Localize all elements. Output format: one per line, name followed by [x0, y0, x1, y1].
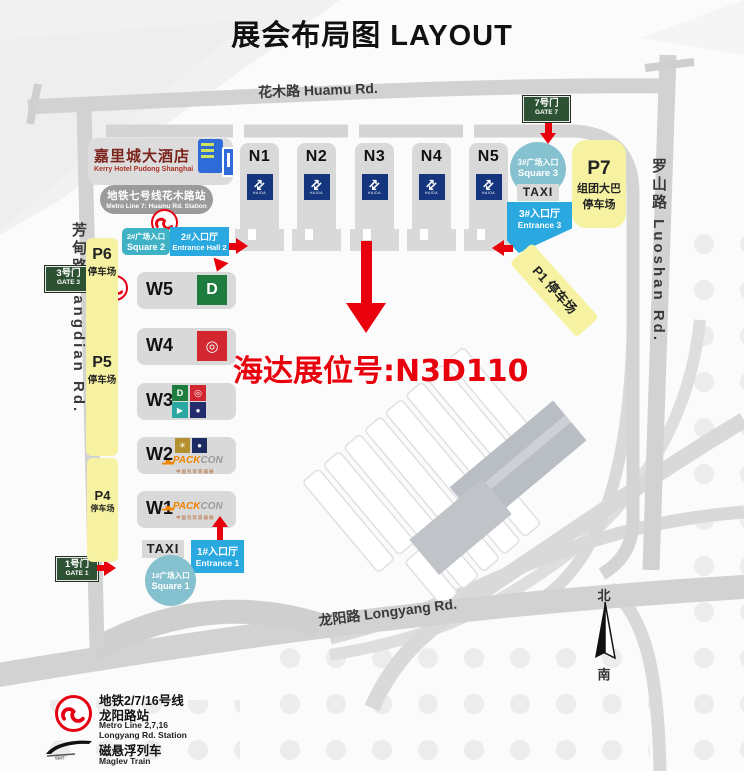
hall-n4-base: [407, 229, 456, 251]
entrance-1-label: 1#入口厅 Entrance 1: [191, 540, 244, 573]
square-1-en: Square 1: [145, 581, 196, 591]
maglev-train-icon: SMT: [45, 738, 95, 760]
gate-7-cn: 7号门: [524, 97, 569, 109]
hall-n2-label: N2: [297, 143, 336, 166]
hall-n1-label: N1: [240, 143, 279, 166]
brand-logo-red-emblem: ◎: [197, 331, 227, 361]
square-1-circle: 1#广场入口 Square 1: [145, 555, 196, 606]
brand-logo-navy: ●: [190, 402, 206, 418]
metro-line7-en: Metro Line 7: Huamu Rd. Station: [100, 203, 213, 210]
expo-arrows-logo: ⇄HAIDA: [419, 174, 445, 200]
parking-p6: P6 停车场: [86, 238, 118, 278]
hall-n5-label: N5: [469, 143, 508, 166]
square-3-cn: 3#广场入口: [510, 157, 566, 168]
hotel-building-icon: [198, 139, 234, 175]
packcon-logo: ▂▅▃PACKCON 中国包装容器展: [162, 454, 223, 476]
metro-line7-cn: 地铁七号线花木路站: [100, 185, 213, 203]
shanghai-metro-icon: [55, 695, 92, 732]
hall-n3-label: N3: [355, 143, 394, 166]
parking-p4-label: P4: [87, 458, 118, 503]
huamu-road-label: 花木路 Huamu Rd.: [258, 78, 378, 102]
parking-p5-sub: 停车场: [86, 372, 118, 386]
entrance-1-cn: 1#入口厅: [191, 540, 244, 558]
parking-p7: P7 组团大巴 停车场: [572, 140, 626, 228]
svg-text:SMT: SMT: [55, 756, 65, 761]
parking-p6-p5: P6 停车场 P5 停车场: [86, 238, 118, 456]
compass-needle-icon: [592, 601, 618, 661]
entrance-3-en: Entrance 3: [507, 220, 572, 230]
compass-south-label: 南: [590, 664, 618, 683]
hall-n3: N3 ⇄HAIDA: [355, 143, 394, 229]
parking-p6-sub: 停车场: [86, 264, 118, 278]
entrance-hall-2-en: Entrance Hall 2: [170, 243, 229, 252]
parking-p4: P4 停车场: [87, 458, 118, 562]
expo-arrows-logo: ⇄HAIDA: [247, 174, 273, 200]
hall-w4: W4 ◎: [137, 328, 236, 365]
hall-n1: N1 ⇄HAIDA: [240, 143, 279, 229]
parking-p5-label: P5: [86, 354, 118, 372]
entrance-3-arrow-icon: [503, 245, 513, 252]
parking-p5: P5 停车场: [86, 278, 118, 386]
page-title: 展会布局图 LAYOUT: [0, 12, 744, 54]
parking-p4-sub: 停车场: [87, 503, 118, 514]
expo-arrows-logo: ⇄HAIDA: [304, 174, 330, 200]
square-2-cn: 2#广场入口: [122, 228, 170, 242]
entrance-1-arrow-icon: [217, 526, 223, 540]
gate-7-sign: 7号门 GATE 7: [523, 96, 570, 122]
exhibition-layout-map: 展会布局图 LAYOUT 花木路 Huamu Rd. 罗山路 Luoshan R…: [0, 0, 744, 771]
brand-logo-red-emblem: ◎: [190, 385, 206, 401]
hall-n4-label: N4: [412, 143, 451, 166]
brand-logo-navy-round: ●: [192, 438, 207, 453]
hall-n2-base: [292, 229, 341, 251]
parking-p7-line2: 停车场: [572, 196, 626, 212]
parking-p7-label: P7: [572, 140, 626, 180]
hall-w3-label: W3: [146, 390, 173, 411]
hall-w5-label: W5: [146, 279, 173, 300]
brand-logo-green-d: D: [172, 385, 188, 401]
square-1-cn: 1#广场入口: [145, 570, 196, 581]
brand-logo-gold-bulb: ☀: [175, 438, 190, 453]
expo-arrows-logo: ⇄HAIDA: [362, 174, 388, 200]
booth-arrowhead-icon: [346, 303, 386, 333]
parking-p6-label: P6: [86, 246, 118, 264]
legend-maglev-en: Maglev Train: [99, 756, 151, 766]
brand-logo-green-d: D: [197, 275, 227, 305]
entrance-1-en: Entrance 1: [191, 558, 244, 568]
legend-metro-line3: Metro Line 2,7,16: [99, 720, 168, 730]
square-3-en: Square 3: [510, 168, 566, 179]
hall-n5: N5 ⇄HAIDA: [469, 143, 508, 229]
legend-metro-line4: Longyang Rd. Station: [99, 730, 187, 740]
hall-n2: N2 ⇄HAIDA: [297, 143, 336, 229]
hall-w5: W5 D: [137, 272, 236, 309]
luoshan-road-label: 罗山路 Luoshan Rd.: [648, 158, 669, 448]
gate-1-en: GATE 1: [57, 570, 97, 578]
booth-highlight-text: 海达展位号:N3D110: [233, 346, 529, 390]
booth-arrow-icon: [361, 241, 372, 304]
expo-arrows-logo: ⇄HAIDA: [476, 174, 502, 200]
metro-line7-station-sign: 地铁七号线花木路站 Metro Line 7: Huamu Rd. Statio…: [100, 185, 213, 214]
hall-n4: N4 ⇄HAIDA: [412, 143, 451, 229]
brand-logo-teal: ▶: [172, 402, 188, 418]
taxi-label-top: TAXI: [517, 184, 559, 201]
entrance-hall-2-cn: 2#入口厅: [170, 227, 229, 243]
hall-w4-label: W4: [146, 335, 173, 356]
hall-w3: W3 D ◎ ▶ ●: [137, 383, 236, 420]
parking-p7-line1: 组团大巴: [572, 180, 626, 196]
entrance-2-arrowhead-icon: [236, 238, 248, 254]
hall-w2: W2 ☀ ● ▂▅▃PACKCON 中国包装容器展: [137, 437, 236, 474]
gate-3-en: GATE 3: [46, 279, 91, 287]
gate-1-arrowhead-icon: [104, 560, 116, 576]
gate-3-sign: 3号门 GATE 3: [45, 266, 92, 292]
entrance-3-cn: 3#入口厅: [507, 202, 572, 220]
square-2-label: 2#广场入口 Square 2: [122, 228, 170, 255]
entrance-hall-2-label: 2#入口厅 Entrance Hall 2: [170, 227, 229, 256]
gate-3-cn: 3号门: [46, 267, 91, 279]
gate-7-en: GATE 7: [524, 109, 569, 117]
square-2-en: Square 2: [122, 242, 170, 252]
hall-n3-base: [350, 229, 399, 251]
